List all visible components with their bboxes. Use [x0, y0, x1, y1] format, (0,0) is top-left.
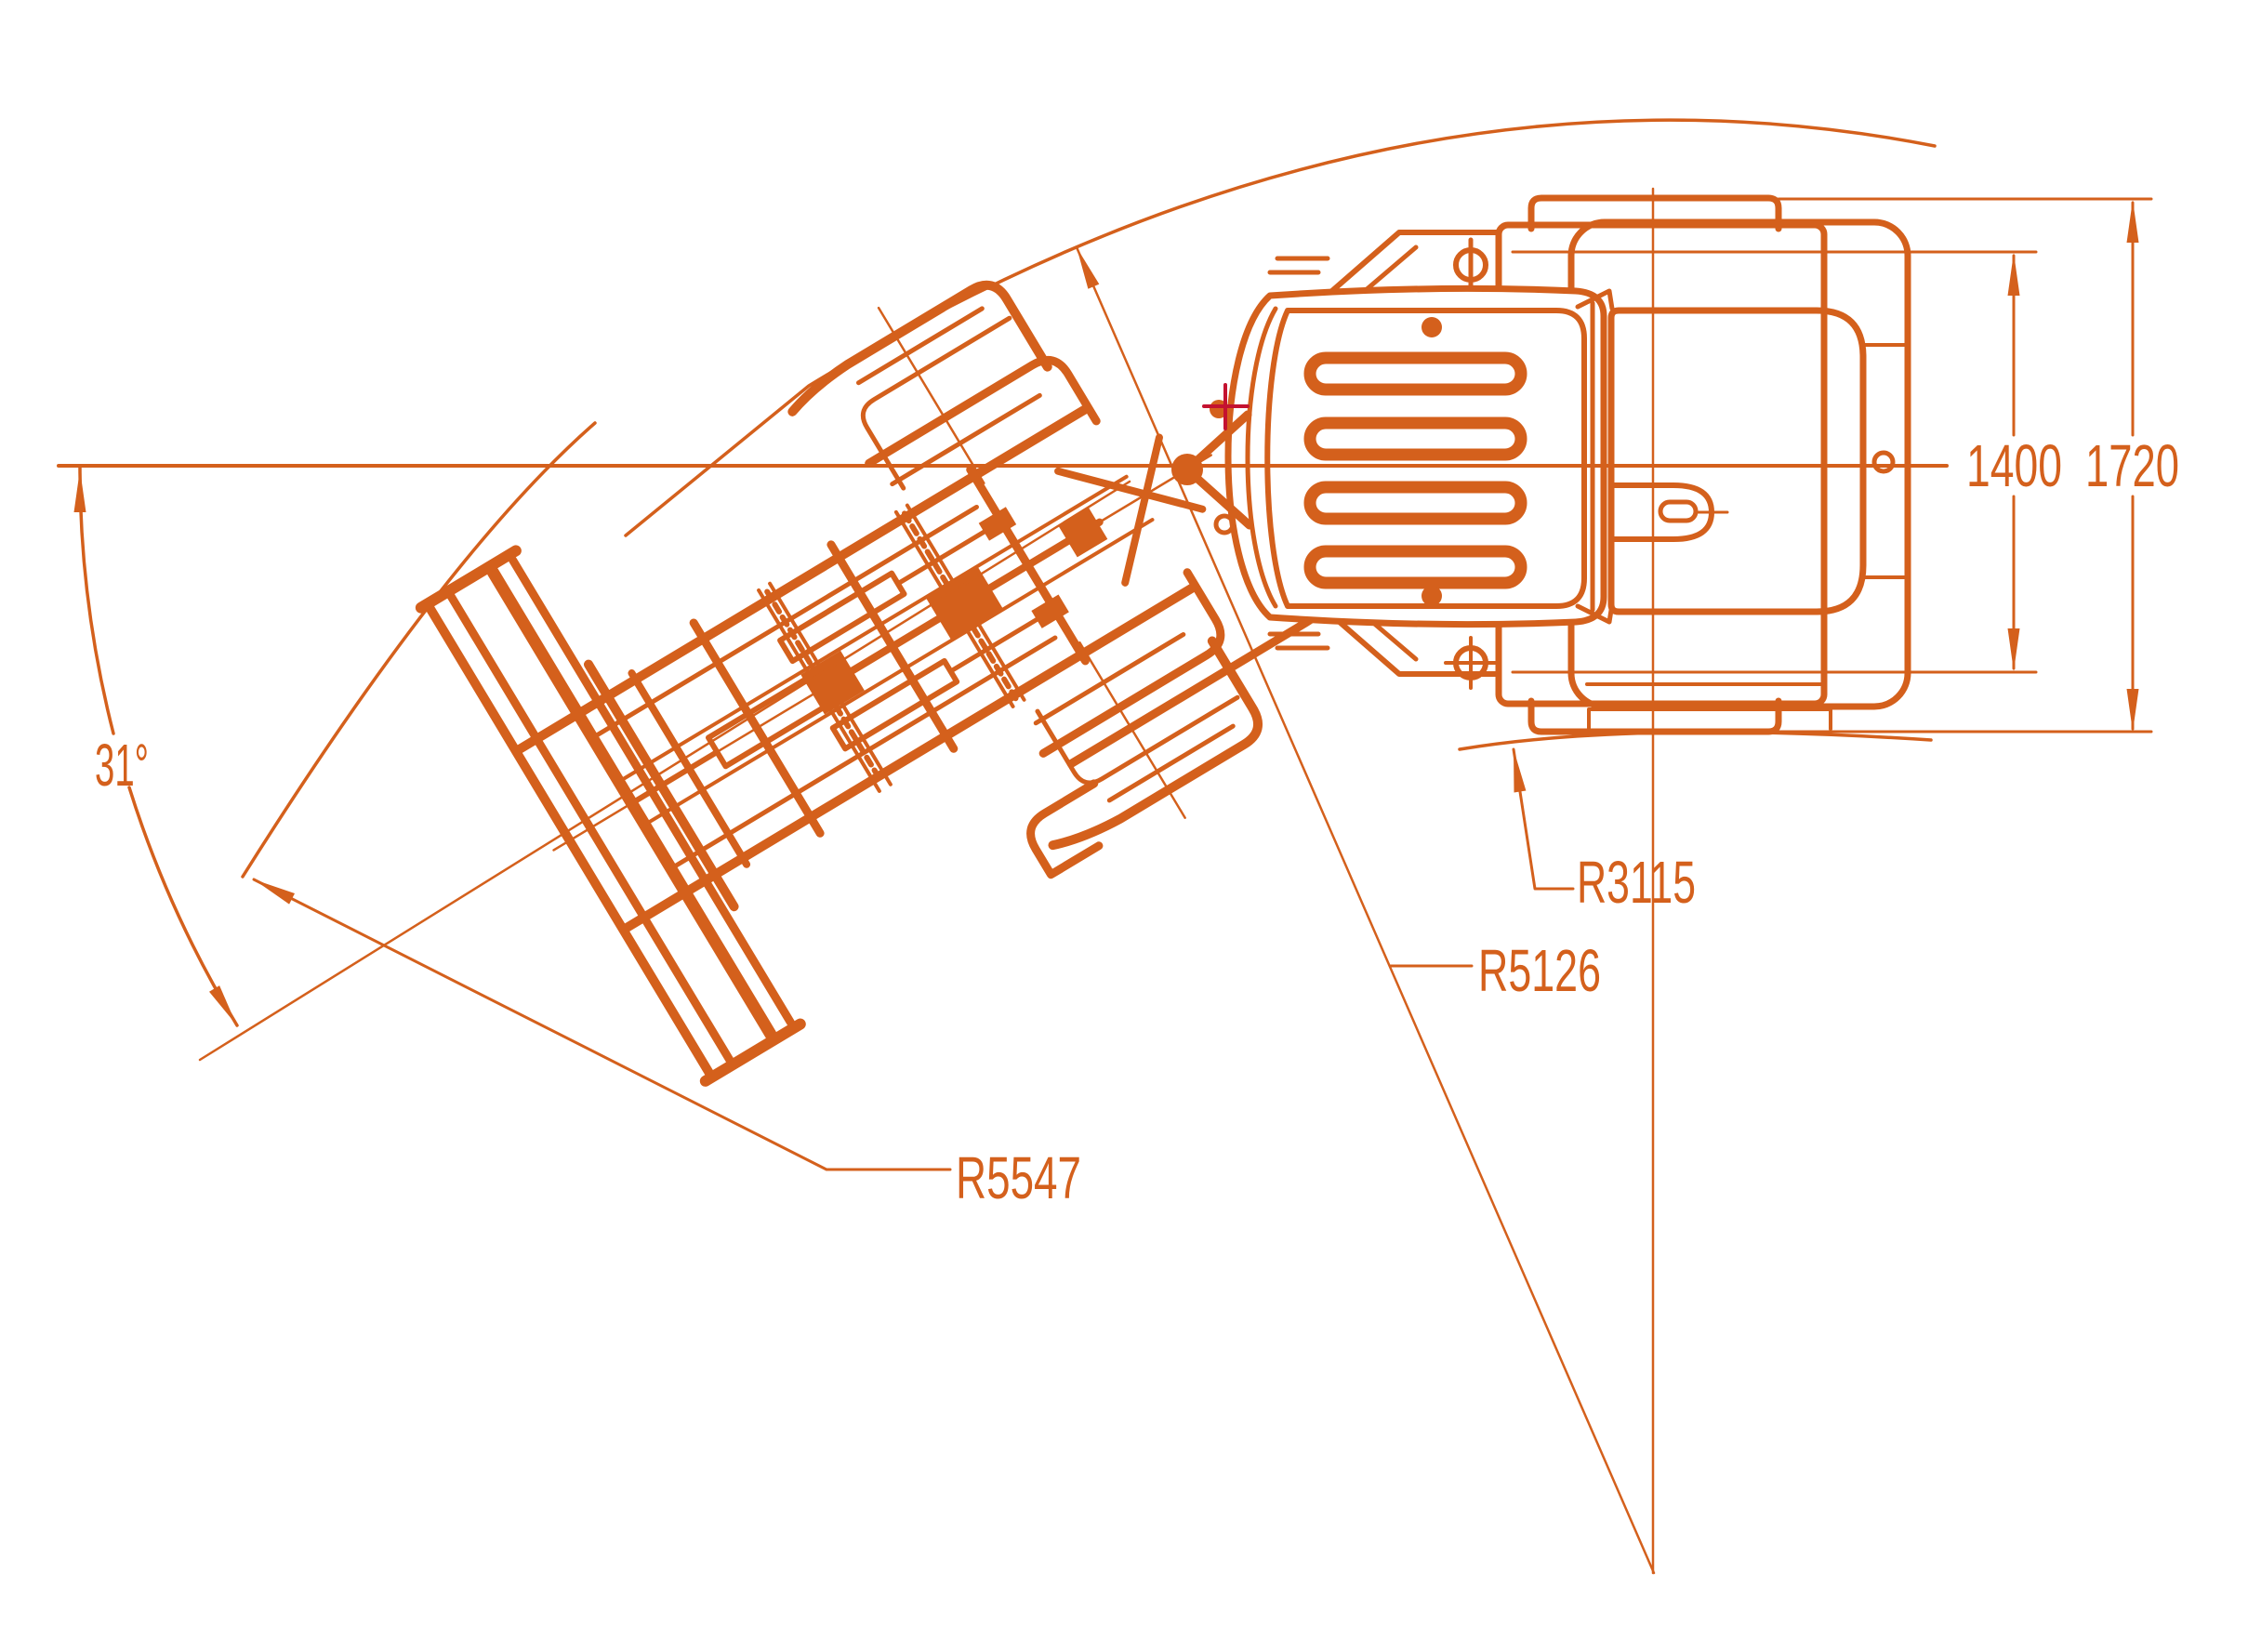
svg-text:R5547: R5547 [956, 1144, 1081, 1211]
svg-text:R5126: R5126 [1478, 937, 1601, 1004]
svg-text:R3115: R3115 [1577, 849, 1696, 916]
svg-text:1400: 1400 [1966, 432, 2062, 499]
svg-text:31°: 31° [95, 732, 149, 799]
svg-text:1720: 1720 [2085, 432, 2179, 499]
